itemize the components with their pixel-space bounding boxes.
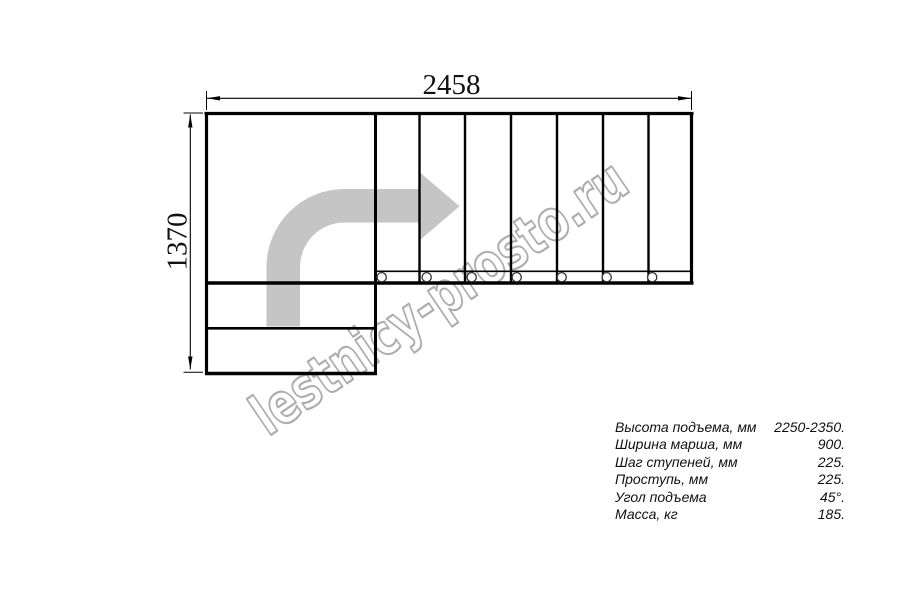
- drawing-page: lestnicy-prosto.ru: [0, 0, 900, 600]
- dim-height-arrow-bottom: [188, 357, 192, 370]
- spec-label: Ширина марша, мм: [615, 436, 742, 453]
- spec-row-tread: Проступь, мм 225.: [615, 471, 845, 488]
- spec-row-mass: Масса, кг 185.: [615, 506, 845, 523]
- spec-value: 225.: [818, 454, 845, 471]
- spec-row-flight-width: Ширина марша, мм 900.: [615, 436, 845, 453]
- spec-value: 185.: [818, 506, 845, 523]
- spec-row-angle: Угол подъема 45°.: [615, 489, 845, 506]
- fastener-circle-5: [557, 273, 566, 282]
- spec-value: 225.: [818, 471, 845, 488]
- spec-value: 45°.: [820, 489, 845, 506]
- spec-label: Проступь, мм: [615, 471, 708, 488]
- fastener-circle-4: [512, 273, 521, 282]
- fastener-circle-1: [377, 273, 386, 282]
- fastener-circle-7: [648, 273, 657, 282]
- spec-value: 2250-2350.: [774, 419, 845, 436]
- fastener-circle-6: [602, 273, 611, 282]
- spec-label: Высота подъема, мм: [615, 419, 757, 436]
- spec-row-height: Высота подъема, мм 2250-2350.: [615, 419, 845, 436]
- spec-label: Масса, кг: [615, 506, 678, 523]
- spec-table: Высота подъема, мм 2250-2350. Ширина мар…: [615, 419, 845, 523]
- dim-width-arrow-left: [207, 96, 220, 100]
- dim-height-arrow-top: [188, 115, 192, 128]
- spec-row-step-pitch: Шаг ступеней, мм 225.: [615, 454, 845, 471]
- dimension-width-label: 2458: [423, 69, 481, 101]
- dim-width-arrow-right: [678, 96, 691, 100]
- fastener-circle-3: [467, 273, 476, 282]
- spec-label: Угол подъема: [615, 489, 707, 506]
- spec-value: 900.: [818, 436, 845, 453]
- spec-label: Шаг ступеней, мм: [615, 454, 738, 471]
- dimension-height-label: 1370: [161, 213, 193, 271]
- fastener-circle-2: [422, 273, 431, 282]
